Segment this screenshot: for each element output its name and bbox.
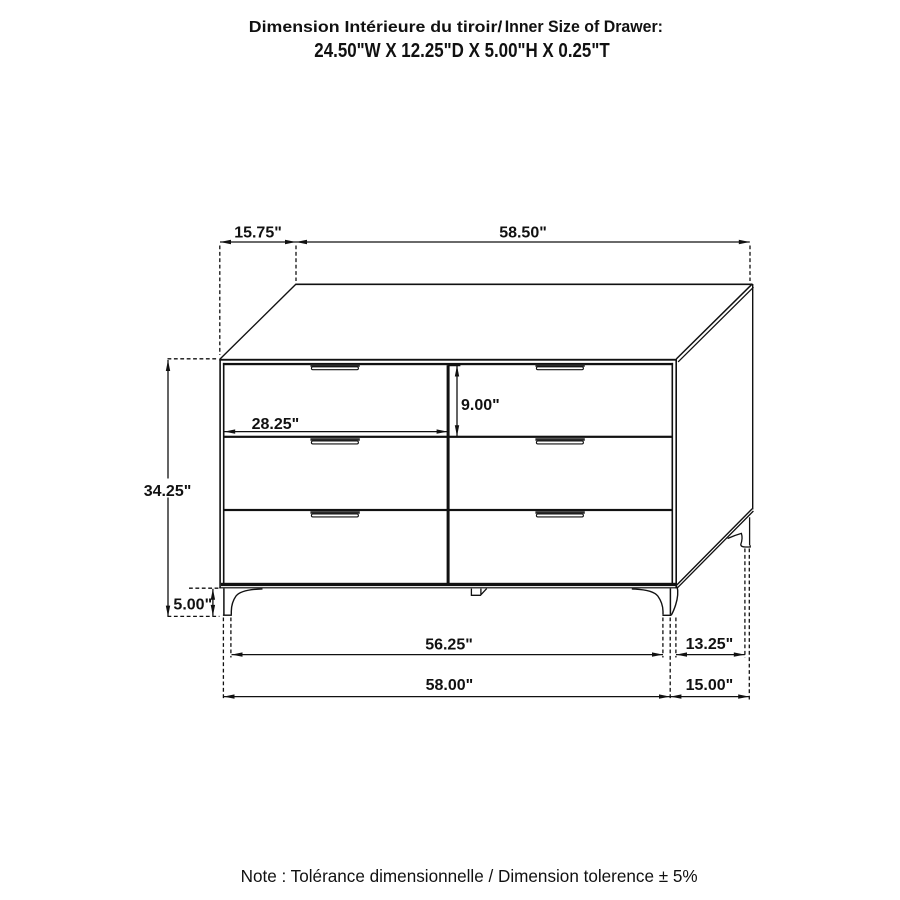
- svg-text:24.50"W X 12.25"D X 5.00"H X 0: 24.50"W X 12.25"D X 5.00"H X 0.25"T: [314, 39, 610, 62]
- svg-text:Inner Size of Drawer:: Inner Size of Drawer:: [505, 18, 663, 36]
- svg-text:5.00": 5.00": [173, 597, 212, 614]
- svg-text:34.25": 34.25": [144, 483, 192, 500]
- svg-text:Dimension Intérieure du tiroir: Dimension Intérieure du tiroir/: [249, 19, 503, 36]
- svg-text:15.00": 15.00": [686, 677, 734, 694]
- svg-text:13.25": 13.25": [686, 636, 734, 653]
- svg-text:Note : Tolérance dimensionnell: Note : Tolérance dimensionnelle / Dimens…: [241, 866, 698, 886]
- svg-text:58.00": 58.00": [426, 677, 474, 694]
- svg-text:28.25": 28.25": [252, 416, 300, 433]
- svg-text:58.50": 58.50": [499, 224, 547, 241]
- svg-text:56.25": 56.25": [425, 636, 473, 653]
- svg-text:9.00": 9.00": [461, 397, 500, 414]
- svg-text:15.75": 15.75": [234, 224, 282, 241]
